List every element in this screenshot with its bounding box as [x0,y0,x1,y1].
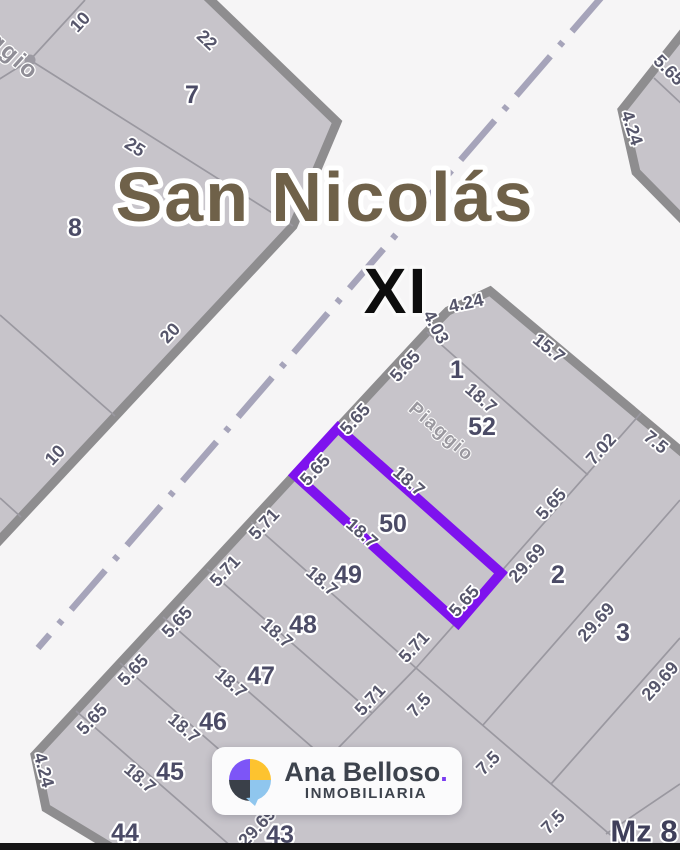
lot-number: 7 [185,81,199,109]
lot-number: 3 [616,619,630,647]
brand-logo-icon [228,759,272,807]
lot-number: 49 [334,561,362,589]
lot-number: 48 [289,611,317,639]
zone-label: XI [364,255,428,327]
lot-number: 50 [379,510,407,538]
lot-number: 45 [156,758,184,786]
bottom-bar [0,843,680,850]
lot-number: 8 [68,214,82,242]
brand-accent-dot: . [440,757,448,787]
lot-number: 2 [551,561,565,589]
lot-number: 52 [468,413,496,441]
brand-name: Ana Belloso. [284,759,448,786]
brand-subtitle: INMOBILIARIA [305,786,427,803]
lot-number: 47 [247,662,275,690]
cadastral-map[interactable]: 10222520105.654.244.244.0315.718.75.655.… [0,0,680,850]
brand-card: Ana Belloso. INMOBILIARIA [212,747,462,815]
district-title: San Nicolás [116,158,535,236]
lot-number: 1 [450,356,464,384]
lot-number: 46 [199,708,227,736]
